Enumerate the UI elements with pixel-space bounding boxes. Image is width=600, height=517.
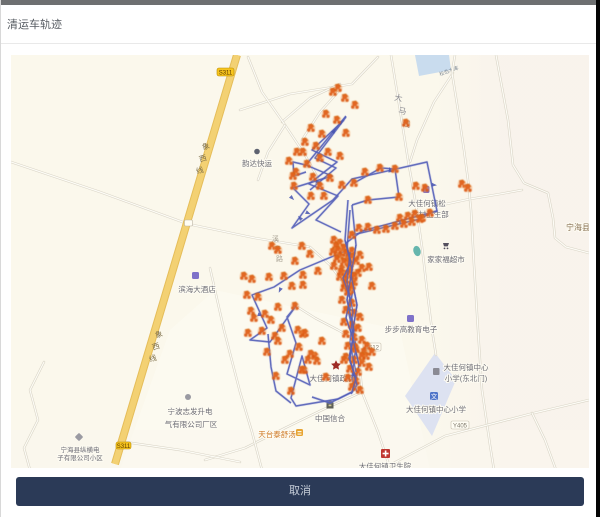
- svg-text:气有限公司厂区: 气有限公司厂区: [165, 419, 218, 429]
- svg-text:S311: S311: [219, 71, 233, 77]
- svg-text:宁波志发升电: 宁波志发升电: [168, 406, 213, 416]
- svg-text:文: 文: [431, 392, 438, 401]
- svg-text:马: 马: [398, 106, 407, 116]
- svg-text:子有限公司小区: 子有限公司小区: [57, 453, 103, 462]
- svg-text:天台泰舒汤: 天台泰舒汤: [258, 429, 296, 439]
- svg-text:宁海县纵横电: 宁海县纵横电: [61, 445, 101, 454]
- svg-text:滨海大酒店: 滨海大酒店: [178, 284, 216, 294]
- svg-text:Y405: Y405: [453, 424, 468, 430]
- svg-text:小学(东北门): 小学(东北门): [445, 373, 488, 383]
- svg-text:中国信合: 中国信合: [315, 413, 345, 423]
- svg-text:大: 大: [394, 92, 404, 103]
- svg-text:宁海县: 宁海县: [566, 222, 589, 232]
- svg-text:S311: S311: [117, 444, 131, 450]
- svg-text:大佳何镇中心: 大佳何镇中心: [444, 362, 489, 372]
- svg-text:韵达快运: 韵达快运: [242, 158, 272, 168]
- svg-text:大佳何镇卫生院: 大佳何镇卫生院: [359, 461, 412, 468]
- svg-text:大佳何镇松: 大佳何镇松: [408, 198, 446, 208]
- svg-text:路: 路: [276, 254, 283, 263]
- svg-text:家家福超市: 家家福超市: [427, 254, 465, 264]
- svg-text:大佳何镇中心小学: 大佳何镇中心小学: [406, 404, 466, 414]
- svg-text:步步高教育电子: 步步高教育电子: [385, 324, 438, 334]
